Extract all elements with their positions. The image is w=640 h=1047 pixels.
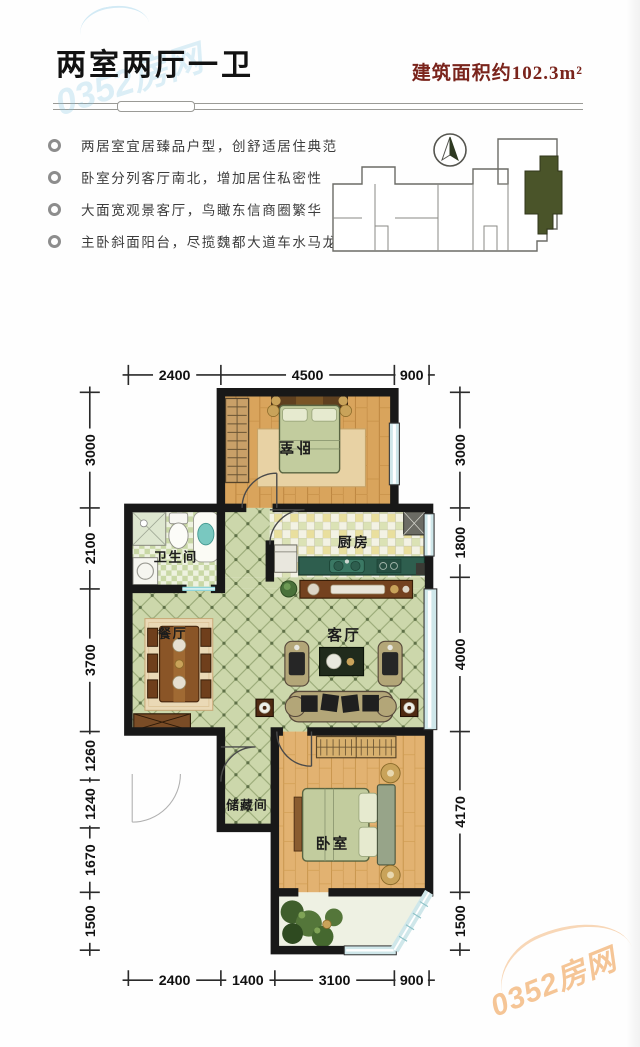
floor-storage [221,732,275,828]
room-label-bedroom-south: 卧室 [316,834,350,852]
dimension-label: 1400 [232,973,264,986]
dimension-label: 4500 [292,368,324,384]
feature-text: 两居室宜居臻品户型，创舒适居住典范 [81,135,338,155]
dimension-label: 1670 [83,844,99,876]
room-label-kitchen: 厨房 [338,534,370,550]
balcony-table [323,920,331,928]
room-label-bathroom: 卫生间 [154,549,198,565]
dimension-label: 4170 [453,796,469,828]
dimension-label: 1500 [453,905,469,937]
dimension-label: 3100 [319,973,351,986]
feature-list: 两居室宜居臻品户型，创舒适居住典范 卧室分列客厅南北，增加居住私密性 大面宽观景… [48,129,338,257]
floor-hall [221,508,270,577]
door-entry [132,774,180,822]
dimension-label: 900 [400,368,424,384]
toilet [169,523,188,548]
dimension-label: 1240 [83,788,99,820]
bullet-ring-icon [48,235,61,248]
title-divider [53,103,583,110]
compass-icon [434,134,466,166]
bullet-ring-icon [48,171,61,184]
brochure-page: 0352房网 两室两厅一卫 建筑面积约102.3m² 两居室宜居臻品户型，创舒适… [0,0,640,1047]
room-label-dining: 餐厅 [157,625,187,641]
feature-item: 主卧斜面阳台，尽揽魏都大道车水马龙 [48,225,338,257]
room-label-living: 客厅 [326,626,361,644]
feature-item: 两居室宜居臻品户型，创舒适居住典范 [48,129,338,161]
feature-item: 大面宽观景客厅，鸟瞰东信商圈繁华 [48,193,338,225]
watermark-swoosh-top [76,0,149,38]
dimension-label: 4000 [453,639,469,671]
room-label-bedroom-north: 卧室 [277,438,311,456]
dimension-label: 2400 [159,973,191,986]
bullet-ring-icon [48,203,61,216]
feature-text: 大面宽观景客厅，鸟瞰东信商圈繁华 [81,199,323,219]
feature-text: 主卧斜面阳台，尽揽魏都大道车水马龙 [81,231,338,251]
area-label: 建筑面积约102.3m² [412,58,583,85]
dimension-label: 2400 [159,368,191,384]
window-kitchen [424,514,434,556]
dimension-label: 3000 [453,434,469,466]
fridge [274,545,296,572]
dimension-label: 3000 [83,434,99,466]
page-edge-shade [626,0,640,1047]
sideboard [281,580,413,598]
dimension-label: 1260 [83,740,99,772]
feature-item: 卧室分列客厅南北，增加居住私密性 [48,161,338,193]
bullet-ring-icon [48,139,61,152]
dimension-label: 2100 [83,532,99,564]
dimension-label: 1500 [83,905,99,937]
window-bedroom-north [389,423,399,485]
sink [198,523,214,545]
room-label-storage: 储藏间 [225,797,268,812]
window-living [424,589,437,730]
dimension-label: 900 [400,973,424,986]
floor-plan: 卧室 卫生间 厨房 餐厅 客厅 储藏间 卧室 2400 4500 900 240… [70,346,472,986]
dimension-label: 3700 [83,644,99,676]
page-title: 两室两厅一卫 [56,40,254,84]
feature-text: 卧室分列客厅南北，增加居住私密性 [81,167,323,187]
building-key-plan [332,130,580,256]
dimension-label: 1800 [453,527,469,559]
